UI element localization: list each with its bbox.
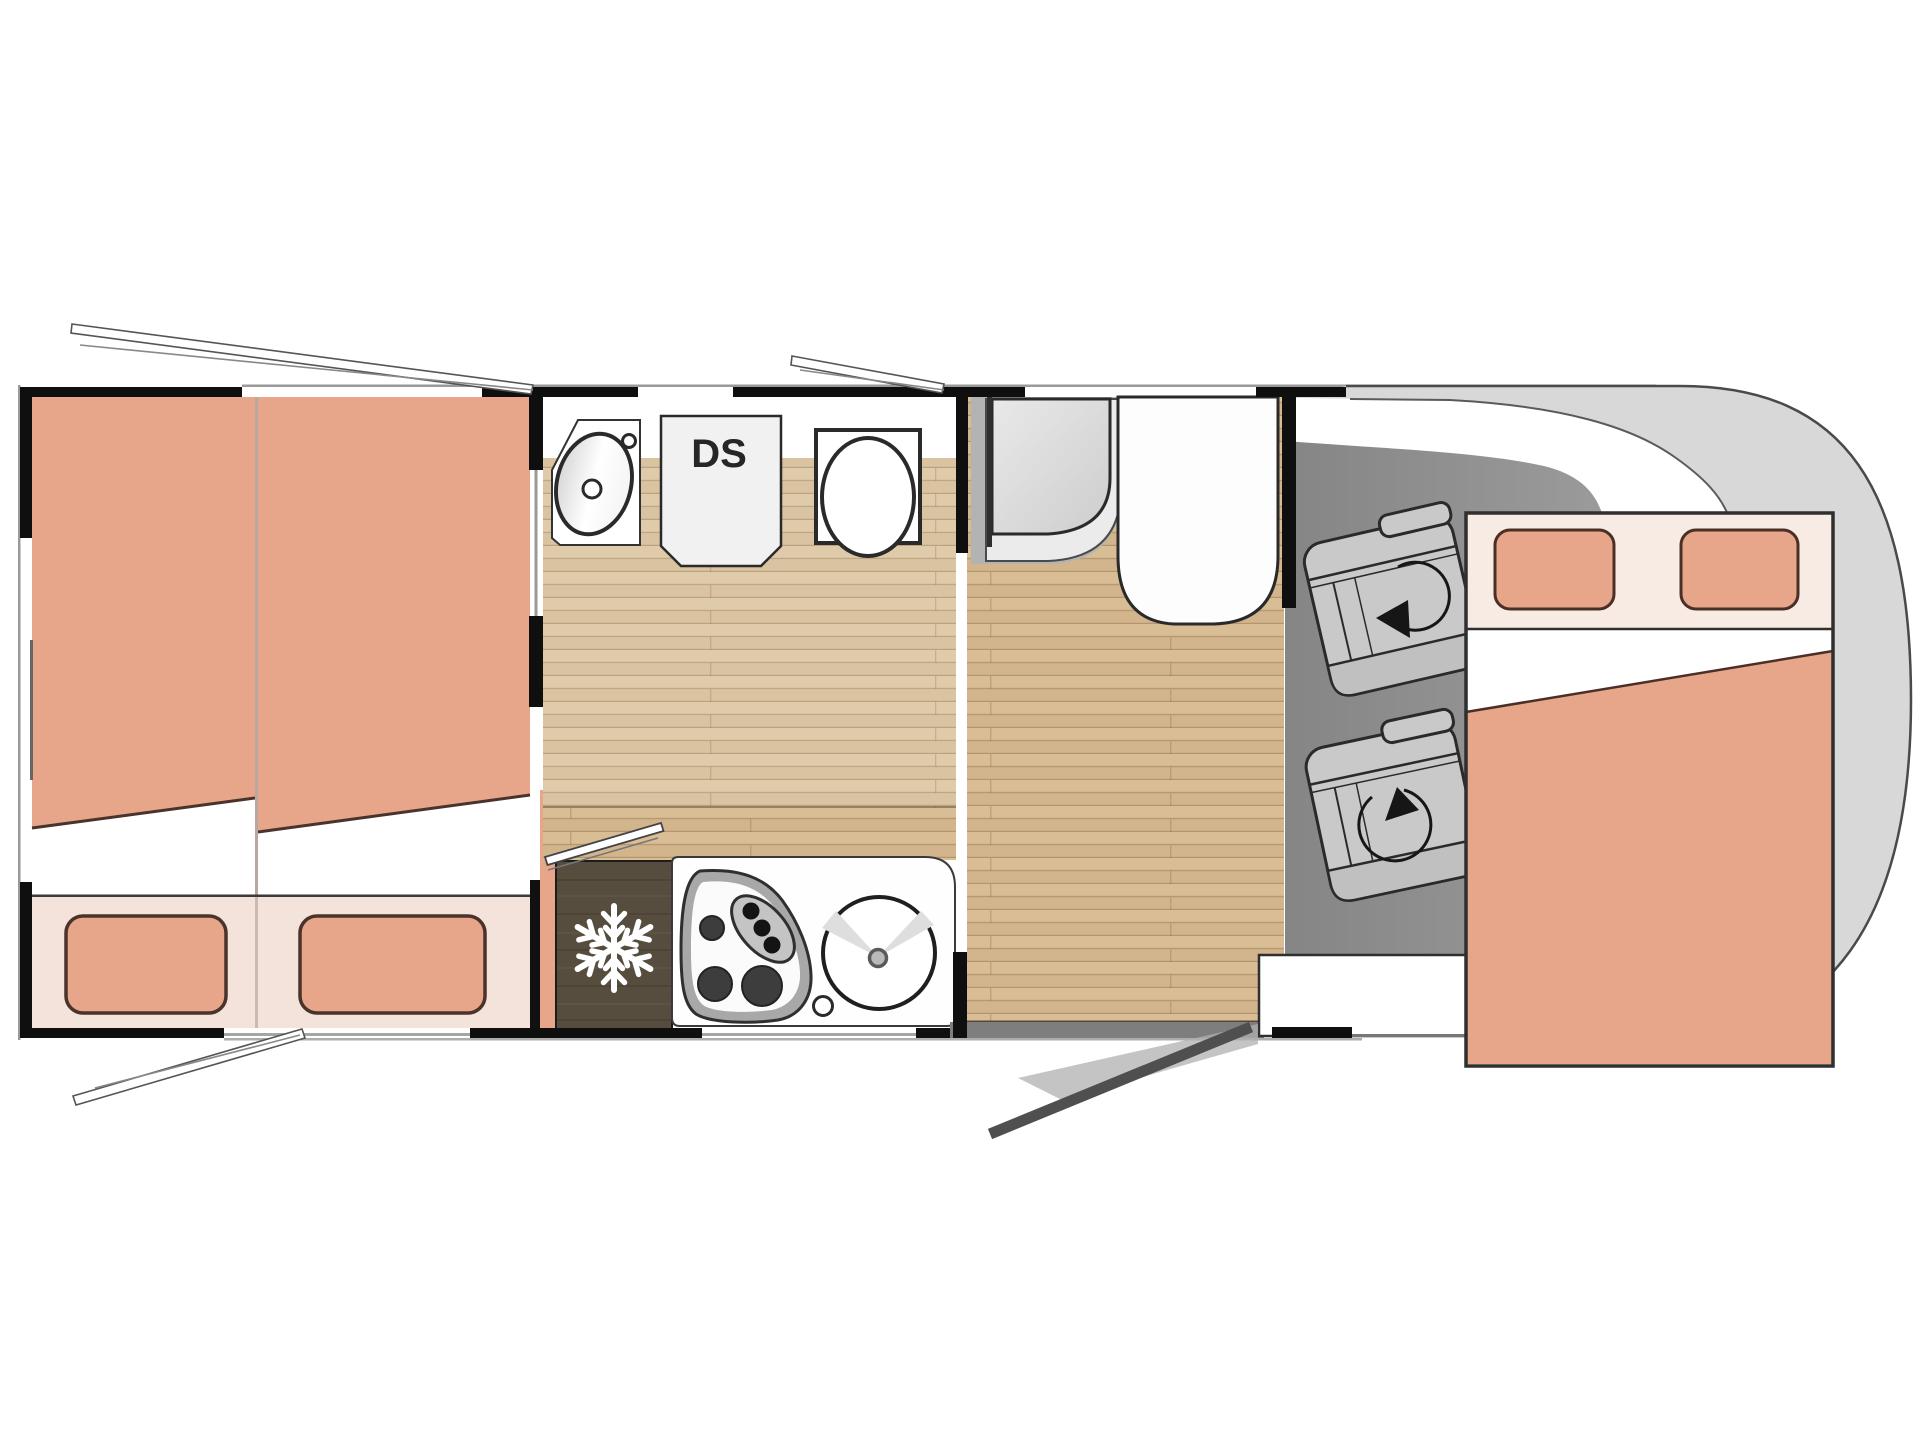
svg-text:DS: DS [691,432,747,476]
